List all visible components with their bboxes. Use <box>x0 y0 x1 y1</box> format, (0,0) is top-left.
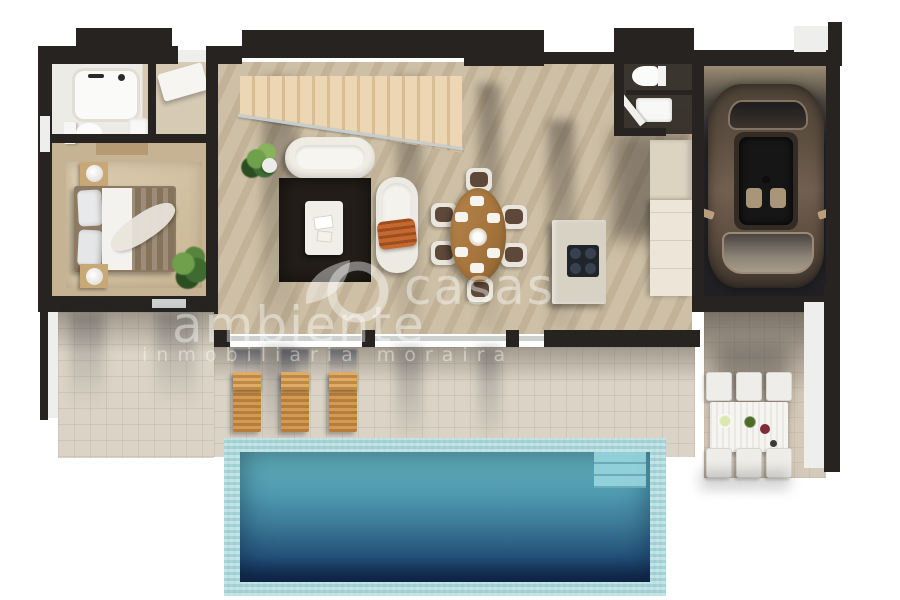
wc-partition <box>626 90 692 95</box>
terrace-left-edge <box>40 312 48 420</box>
chair-cushion <box>470 172 488 187</box>
outdoor-chair <box>736 372 762 401</box>
lounger-backrest <box>281 372 309 390</box>
sofa-seat <box>295 145 365 169</box>
place-setting <box>487 213 500 223</box>
terrace-shadow-col <box>70 312 104 407</box>
car-antenna <box>762 176 770 183</box>
sun-lounger <box>329 372 357 432</box>
wall-left <box>38 46 52 312</box>
place-setting <box>455 247 468 257</box>
wall-kitchen-garage <box>692 50 704 312</box>
burner <box>585 248 596 259</box>
window-top <box>178 50 206 62</box>
wall-garage-top <box>694 50 840 66</box>
wc-toilet-bowl <box>632 66 658 86</box>
food-plate <box>718 414 732 428</box>
terrace-shadow-col <box>156 312 196 407</box>
garage-roof-edge <box>794 26 828 52</box>
place-setting <box>487 248 500 258</box>
wc-toilet-tank <box>658 66 666 86</box>
bedroom-shelf <box>96 143 148 155</box>
living-plant <box>238 140 284 182</box>
place-setting <box>455 212 468 222</box>
chaise-throw-orange <box>376 218 417 250</box>
south-post <box>506 330 519 347</box>
place-setting <box>470 196 484 206</box>
wall-top-block <box>76 28 172 50</box>
sun-lounger <box>281 372 309 432</box>
window-left <box>40 116 50 152</box>
plant-pot <box>262 158 277 173</box>
place-setting <box>470 263 484 273</box>
south-post <box>214 330 230 347</box>
wall-bedroom-south <box>38 296 214 312</box>
bed-pillow <box>77 229 103 266</box>
wall-top-block <box>464 30 544 66</box>
wall-garage-right <box>826 50 840 298</box>
bedroom-slider-glass <box>152 299 186 308</box>
chair-cushion <box>505 247 523 262</box>
wall-top-thin <box>544 52 614 64</box>
car-windshield <box>722 232 814 274</box>
floorplan-render: casas ambiente inmobiliaria moraira <box>0 0 900 600</box>
kitchen-tall-cabinet <box>650 140 692 200</box>
table-lamp <box>86 165 103 182</box>
car <box>708 84 824 288</box>
chair-shadow <box>760 470 790 490</box>
pool-water <box>240 452 650 582</box>
food-bowl <box>744 416 756 428</box>
table-lamp <box>86 268 103 285</box>
chair-shadow <box>730 470 760 490</box>
patio-right-wall <box>804 302 824 468</box>
centerpiece-bowl <box>469 228 487 246</box>
wall-top-stairs <box>242 30 464 58</box>
bath-faucet <box>88 74 104 78</box>
boundary-fence <box>824 286 840 472</box>
shower-head <box>118 74 125 81</box>
wall-top-block <box>614 28 694 64</box>
bed-pillow <box>77 189 103 226</box>
magazine <box>316 230 332 243</box>
burner <box>585 263 596 274</box>
outdoor-chair <box>766 372 792 401</box>
pool-steps <box>594 452 646 488</box>
wc-wall-bottom <box>614 128 666 136</box>
burner <box>570 248 581 259</box>
outdoor-chair <box>706 372 732 401</box>
terrace-shadow-col <box>396 347 422 447</box>
wall-bedroom-living <box>206 62 218 314</box>
lounger-backrest <box>329 372 357 390</box>
bathtub <box>72 68 140 122</box>
kitchen-cabinets <box>650 200 692 296</box>
wc-wall-left <box>614 62 624 134</box>
car-rear-window <box>728 100 808 130</box>
terrace-shadow-col <box>478 347 500 447</box>
magazine <box>313 215 334 231</box>
chair-cushion <box>505 209 523 224</box>
car-seat <box>770 188 786 208</box>
car-seat <box>746 188 762 208</box>
wall-closet <box>148 62 156 136</box>
wall-bed-bath <box>52 134 208 143</box>
chair-cushion <box>471 282 489 297</box>
food-cup <box>770 440 777 447</box>
burner <box>570 263 581 274</box>
lounger-backrest <box>233 372 261 390</box>
chair-shadow <box>700 470 730 490</box>
south-post <box>362 330 375 347</box>
chair-cushion <box>435 207 453 222</box>
food-berries <box>760 424 770 434</box>
wall-south-kitchen <box>544 330 700 347</box>
sun-lounger <box>233 372 261 432</box>
